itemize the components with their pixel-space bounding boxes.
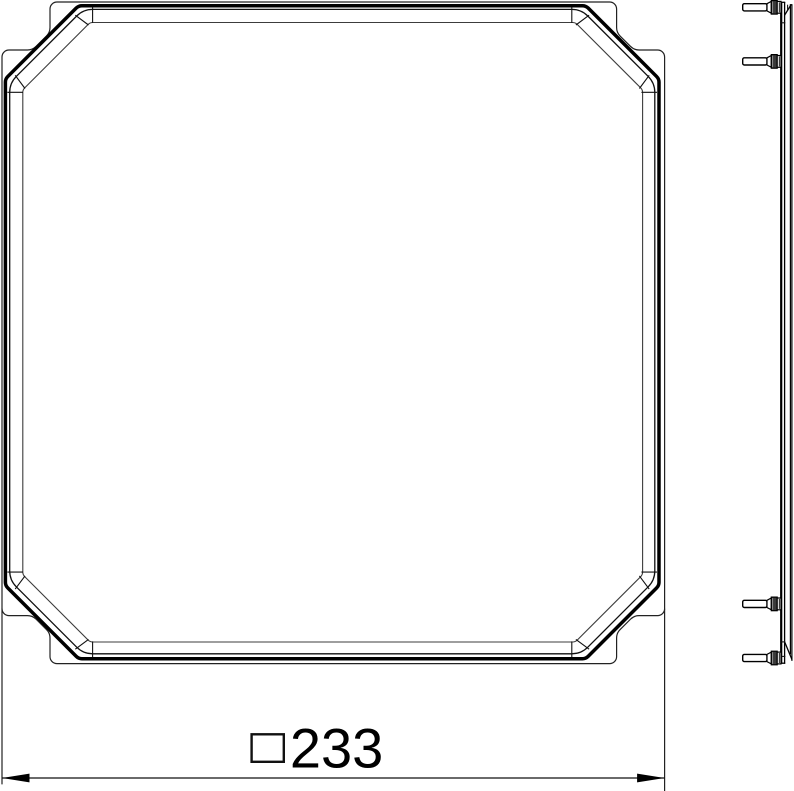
svg-text:233: 233: [290, 717, 383, 780]
